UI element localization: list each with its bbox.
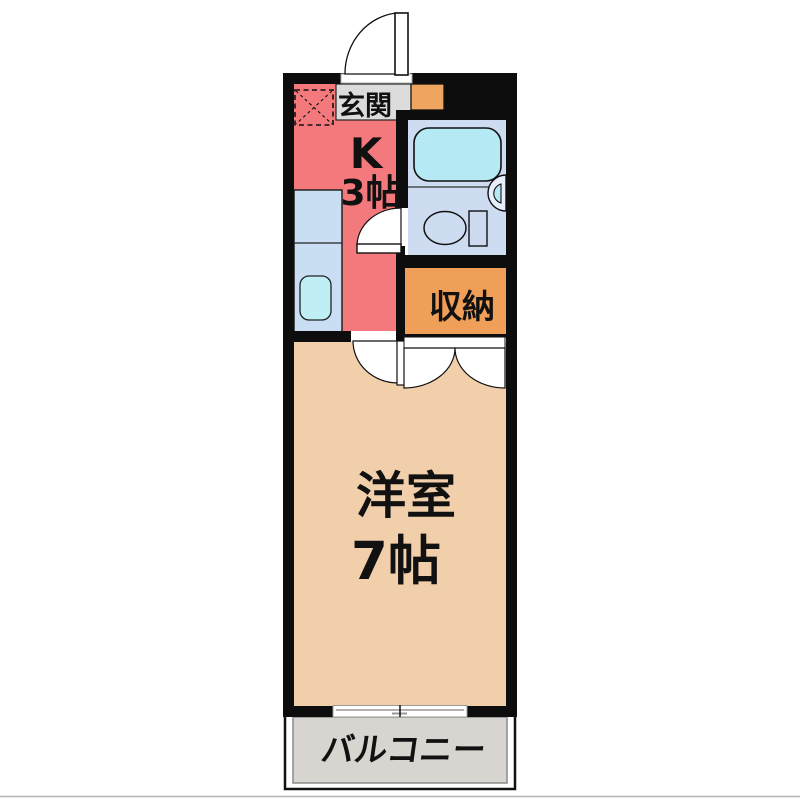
entrance-door-leaf xyxy=(395,13,408,75)
wall-bathroom-closet xyxy=(396,255,506,268)
toilet-bowl xyxy=(424,212,466,245)
closet-label: 収納 xyxy=(429,287,495,326)
bathroom-door-leaf xyxy=(357,244,401,253)
kitchen-type-label: K xyxy=(350,129,384,178)
floor-plan-page: 玄関 K 3帖 収納 洋室 7帖 バルコニー xyxy=(0,0,800,800)
wall-top-right xyxy=(410,73,517,84)
wall-right xyxy=(506,73,517,717)
entrance-label: 玄関 xyxy=(338,90,392,122)
kitchen-doorway xyxy=(351,331,396,342)
wall-left xyxy=(283,73,294,717)
room-type-label: 洋室 xyxy=(356,467,456,525)
entrance-door-arc xyxy=(345,13,397,74)
floor-plan: 玄関 K 3帖 収納 洋室 7帖 バルコニー xyxy=(0,0,800,800)
wall-bathroom-top xyxy=(396,110,506,120)
toilet-tank xyxy=(469,211,487,246)
kitchen-sink xyxy=(300,276,331,320)
closet-doorway xyxy=(404,337,505,348)
shoe-cabinet xyxy=(411,84,444,110)
room-size-label: 7帖 xyxy=(351,531,441,592)
kitchen-size-label: 3帖 xyxy=(340,173,401,214)
balcony-label: バルコニー xyxy=(319,730,489,769)
wall-kitchen-room xyxy=(283,331,351,342)
bathtub xyxy=(414,128,501,181)
